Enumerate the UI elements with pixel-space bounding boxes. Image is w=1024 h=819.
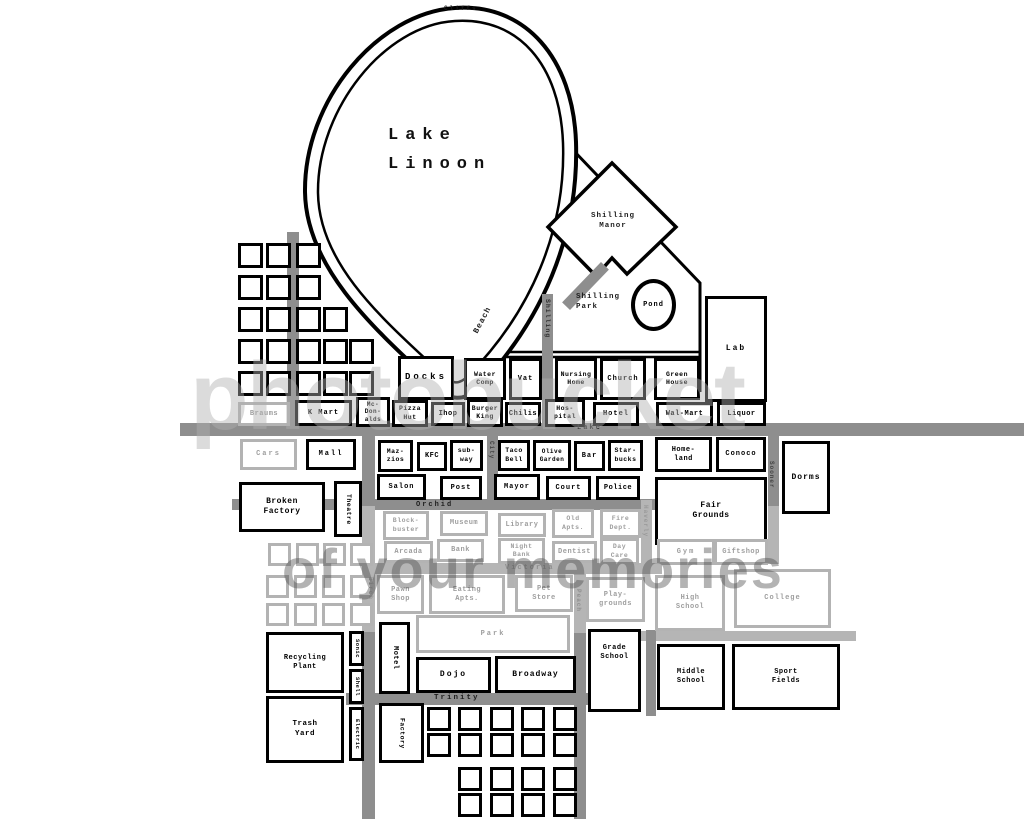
building-pet-store: Pet Store	[515, 575, 573, 612]
school-road	[640, 631, 856, 641]
building-label: Night Bank	[510, 543, 532, 559]
building-label: Dentist	[558, 548, 591, 557]
building-olive-garden: Olive Garden	[533, 440, 571, 471]
south-houses-house	[553, 767, 577, 791]
building-label: Gym	[677, 548, 696, 557]
building-day-care: Day Care	[600, 538, 639, 565]
building-shell: Shell	[349, 669, 364, 704]
building-label: Wal-Mart	[666, 410, 704, 419]
south-houses-house	[521, 767, 545, 791]
south-houses-house	[458, 707, 482, 731]
building-label: Mall	[319, 450, 344, 459]
building-liquor: Liquor	[717, 402, 766, 426]
south-houses-house	[458, 793, 482, 817]
building-trash-yard: Trash Yard	[266, 696, 344, 763]
building-label: Court	[555, 484, 581, 493]
building-label: Library	[506, 521, 539, 530]
building-docks: Docks	[398, 356, 454, 400]
peach-street-label: Peach	[574, 589, 582, 612]
south-houses-house	[427, 707, 451, 731]
building-police: Police	[596, 476, 640, 500]
north-houses-house	[349, 371, 374, 396]
building-label: Eating Apts.	[453, 586, 481, 604]
building-arcada: Arcada	[384, 541, 433, 563]
building-hotel: Hotel	[593, 402, 639, 426]
north-houses-house	[238, 307, 263, 332]
south-houses-house	[553, 793, 577, 817]
building-label: Dojo	[440, 670, 467, 680]
north-houses-house	[266, 371, 291, 396]
building-label: Factory	[397, 718, 405, 749]
building-label: Dorms	[791, 473, 820, 483]
south-houses-house	[553, 733, 577, 757]
north-houses-house	[266, 243, 291, 268]
building-broadway: Broadway	[495, 656, 576, 693]
building-label: Arcada	[394, 548, 422, 557]
building-label: Olive Garden	[540, 448, 565, 463]
west-houses-house	[296, 543, 319, 566]
building-label: Lab	[726, 344, 746, 354]
building-label: Sonic	[353, 639, 360, 658]
building-bar: Bar	[574, 441, 605, 471]
building-wal-mart: Wal-Mart	[656, 402, 713, 426]
south-houses-house	[458, 767, 482, 791]
building-label: Bank	[451, 546, 470, 555]
building-museum: Museum	[440, 511, 488, 536]
building-fair-grounds: Fair Grounds	[655, 477, 767, 545]
building-label: Maz- zios	[387, 448, 405, 464]
building-label: Home- land	[672, 446, 696, 464]
building-label: Play- grounds	[599, 591, 632, 609]
building-label: Trash Yard	[292, 720, 317, 739]
building-broken-factory: Broken Factory	[239, 482, 325, 532]
building-label: Electric	[353, 719, 360, 749]
sooner-street-label: Sooner	[767, 461, 775, 489]
building-nursing-home: Nursing Home	[555, 358, 597, 400]
building-vat: Vat	[509, 358, 542, 400]
cliffs-label: Cliffs	[444, 5, 478, 13]
building-theatre: Theatre	[334, 481, 362, 537]
building-mcdonalds: Mc- Don- alds	[356, 397, 390, 427]
building-mall: Mall	[306, 439, 356, 470]
south-houses-house	[490, 793, 514, 817]
north-houses-house	[266, 275, 291, 300]
city-street-label: City	[487, 441, 495, 459]
building-label: Green House	[666, 371, 688, 387]
building-cars: Cars	[240, 439, 297, 470]
building-chilis: Chilis	[505, 402, 541, 426]
building-park: Park	[416, 615, 570, 653]
south-houses-house	[553, 707, 577, 731]
building-label: Sport Fields	[772, 668, 800, 686]
birch-road-n	[362, 436, 375, 506]
north-houses-house	[238, 371, 263, 396]
building-label: Taco Bell	[505, 447, 523, 463]
building-label: Mayor	[504, 483, 530, 492]
west-houses-house	[266, 603, 289, 626]
building-grade-school: Grade School	[588, 629, 641, 712]
building-label: Conoco	[725, 450, 756, 459]
building-mazzios: Maz- zios	[378, 440, 413, 472]
north-houses-house	[296, 371, 321, 396]
building-middle-school: Middle School	[657, 644, 725, 710]
building-motel: Motel	[379, 622, 410, 694]
building-label: Pizza Hut	[399, 405, 421, 421]
building-label: Park	[481, 630, 506, 639]
building-taco-bell: Taco Bell	[498, 440, 530, 471]
building-pawn-shop: Pawn Shop	[377, 575, 424, 614]
building-label: Theatre	[344, 494, 352, 525]
building-post: Post	[440, 476, 482, 500]
building-bank: Bank	[437, 539, 484, 562]
orchid-street-label: Orchid	[416, 501, 453, 510]
building-label: Nursing Home	[561, 371, 592, 387]
building-label: Church	[607, 375, 638, 384]
building-label: Hos- pital	[554, 405, 576, 421]
building-label: Shell	[353, 677, 360, 696]
south-houses-house	[490, 707, 514, 731]
building-dorms: Dorms	[782, 441, 830, 514]
trinity-street-label: Trinity	[434, 694, 480, 704]
south-houses-house	[490, 733, 514, 757]
building-hospital: Hos- pital	[545, 399, 585, 427]
pond: Pond	[631, 279, 676, 331]
building-conoco: Conoco	[716, 437, 766, 472]
building-blockbuster: Block- buster	[383, 511, 429, 540]
building-eating-apts: Eating Apts.	[429, 575, 505, 614]
building-label: Docks	[405, 372, 447, 383]
building-label: Liquor	[727, 410, 755, 419]
west-houses-house	[294, 575, 317, 598]
building-label: Salon	[388, 483, 414, 492]
building-label: Motel	[390, 646, 399, 670]
north-houses-house	[266, 339, 291, 364]
building-label: Block- buster	[393, 517, 419, 533]
north-houses-house	[238, 339, 263, 364]
building-label: Fire Dept.	[609, 515, 631, 531]
building-label: Pet Store	[532, 585, 556, 603]
building-factory: Factory	[379, 703, 424, 763]
building-dentist: Dentist	[552, 541, 597, 563]
building-high-school: High School	[655, 575, 725, 631]
building-label: Pawn Shop	[391, 586, 410, 604]
haverly-street-label: Haverly	[641, 505, 649, 537]
west-houses-house	[350, 543, 373, 566]
lake-street-label: Lake	[577, 424, 602, 433]
building-mayor: Mayor	[494, 474, 540, 500]
building-label: Hotel	[603, 410, 629, 419]
building-ihop: Ihop	[431, 402, 465, 426]
west-houses-house	[322, 603, 345, 626]
building-label: Braums	[250, 410, 278, 419]
building-label: sub- way	[458, 447, 476, 463]
building-braums: Braums	[238, 402, 290, 426]
building-label: High School	[676, 594, 704, 612]
building-college: College	[734, 569, 831, 628]
building-label: K Mart	[308, 409, 339, 418]
midschool-road	[646, 630, 656, 716]
lake-name-label: Lake Linoon	[388, 122, 491, 180]
building-label: Middle School	[677, 668, 705, 686]
north-houses-house	[266, 307, 291, 332]
south-houses-house	[427, 733, 451, 757]
building-label: Old Apts.	[562, 515, 584, 531]
building-label: Bar	[582, 452, 598, 461]
building-burger-king: Burger King	[467, 399, 503, 427]
building-lab: Lab	[705, 296, 767, 402]
building-giftshop: Giftshop	[714, 539, 768, 565]
building-sonic: Sonic	[349, 631, 364, 666]
building-label: Water Comp	[474, 371, 496, 387]
building-subway: sub- way	[450, 440, 483, 471]
building-label: Cars	[256, 450, 281, 459]
town-map: Pond photobucket of your memories DocksW…	[0, 0, 1024, 819]
building-kfc: KFC	[417, 442, 447, 471]
building-homeland: Home- land	[655, 437, 712, 472]
north-houses-house	[296, 243, 321, 268]
building-salon: Salon	[377, 474, 426, 500]
building-label: Broadway	[512, 670, 558, 680]
south-houses-house	[458, 733, 482, 757]
building-label: Star- bucks	[614, 447, 636, 463]
north-houses-house	[323, 371, 348, 396]
building-label: Vat	[518, 375, 534, 384]
building-pizza-hut: Pizza Hut	[392, 400, 428, 427]
birch-street-label: Birch	[366, 577, 374, 600]
building-dojo: Dojo	[416, 657, 491, 693]
west-houses-house	[323, 543, 346, 566]
building-old-apts: Old Apts.	[552, 509, 594, 538]
west-houses-house	[294, 603, 317, 626]
building-label: Grade School	[600, 644, 628, 662]
shilling-park-label: Shilling Park	[576, 293, 620, 313]
building-label: Burger King	[472, 405, 498, 421]
south-houses-house	[521, 707, 545, 731]
south-houses-house	[490, 767, 514, 791]
building-night-bank: Night Bank	[498, 538, 545, 564]
north-houses-house	[296, 339, 321, 364]
building-label: Chilis	[509, 410, 537, 419]
building-church: Church	[600, 358, 646, 400]
building-fire-dept: Fire Dept.	[600, 509, 641, 538]
building-label: College	[764, 594, 800, 603]
north-houses-house	[238, 243, 263, 268]
west-houses-house	[350, 603, 373, 626]
north-houses-house	[296, 307, 321, 332]
building-electric: Electric	[349, 707, 364, 761]
south-houses-house	[521, 733, 545, 757]
north-houses-house	[349, 339, 374, 364]
building-water-comp: Water Comp	[464, 358, 506, 400]
building-label: Day Care	[611, 543, 629, 559]
building-starbucks: Star- bucks	[608, 440, 643, 471]
north-houses-house	[323, 307, 348, 332]
building-recycling-plant: Recycling Plant	[266, 632, 344, 693]
sooner-road-s	[768, 506, 779, 564]
building-label: Police	[604, 484, 632, 493]
north-houses-house	[323, 339, 348, 364]
building-library: Library	[498, 513, 546, 537]
building-label: Fair Grounds	[692, 501, 729, 521]
west-houses-house	[268, 543, 291, 566]
building-green-house: Green House	[654, 358, 700, 400]
building-label: KFC	[425, 452, 439, 461]
building-label: Post	[451, 484, 472, 493]
building-label: Mc- Don- alds	[365, 401, 381, 424]
pond-label: Pond	[643, 301, 664, 309]
south-houses-house	[521, 793, 545, 817]
west-houses-house	[322, 575, 345, 598]
building-gym: Gym	[657, 539, 715, 565]
building-label: Broken Factory	[263, 497, 300, 517]
building-label: Giftshop	[722, 548, 760, 557]
west-houses-house	[266, 575, 289, 598]
north-houses-house	[238, 275, 263, 300]
shilling-manor-label: Shilling Manor	[578, 212, 648, 232]
building-playgrounds: Play- grounds	[586, 577, 645, 622]
building-label: Recycling Plant	[284, 654, 326, 672]
building-label: Ihop	[439, 410, 458, 419]
north-houses-house	[296, 275, 321, 300]
shilling-street-label: Shilling	[543, 299, 551, 338]
building-k-mart: K Mart	[295, 400, 352, 426]
building-label: Museum	[450, 519, 478, 528]
victoria-street-label: Victoria	[505, 564, 555, 573]
building-sport-fields: Sport Fields	[732, 644, 840, 710]
building-court: Court	[546, 476, 591, 500]
